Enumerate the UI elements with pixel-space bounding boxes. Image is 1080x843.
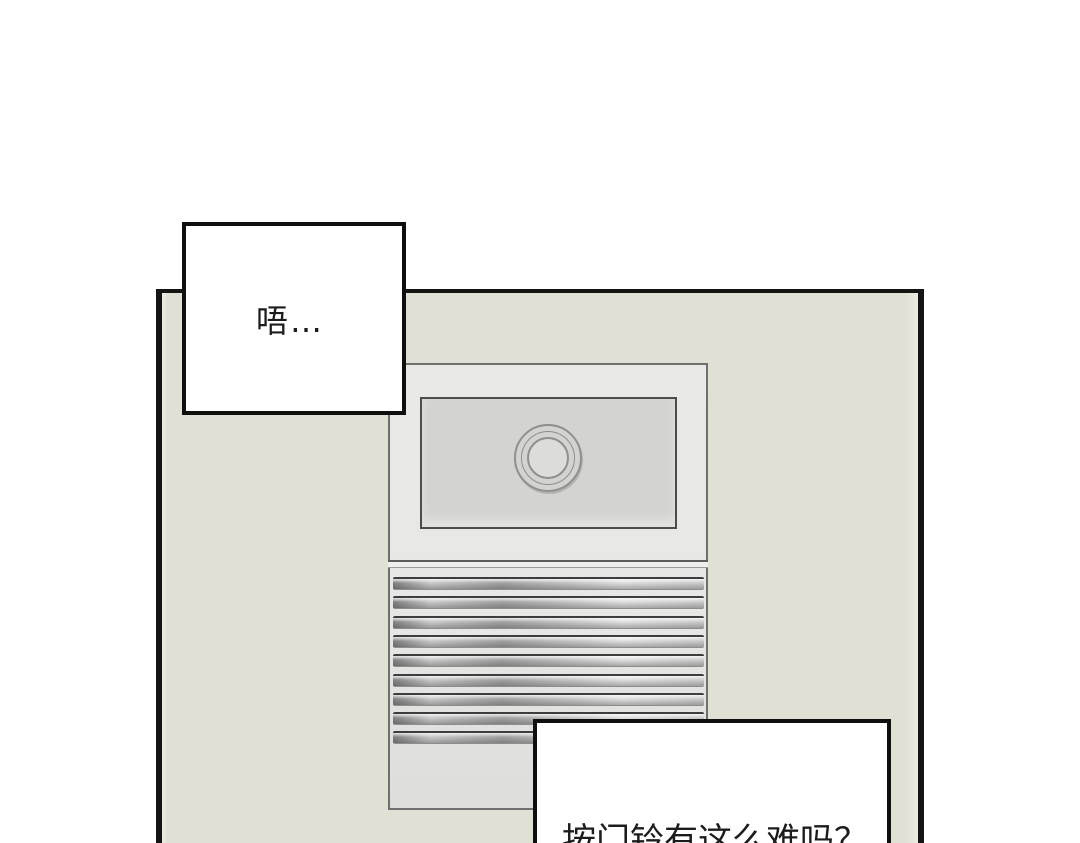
doorbell-screen: [420, 397, 677, 529]
doorbell-seam: [388, 560, 708, 568]
grille-slat: [393, 596, 704, 609]
speech-text-bottom: 按门铃有这么难吗？: [562, 813, 868, 843]
speech-text-top: 唔…: [256, 296, 324, 342]
wall-highlight-left: [162, 293, 166, 843]
camera-lens-center: [527, 437, 569, 479]
camera-lens-icon: [514, 424, 582, 492]
grille-slat: [393, 635, 704, 648]
speech-bubble-bottom: 按门铃有这么难吗？: [533, 719, 891, 843]
grille-slat: [393, 654, 704, 667]
grille-slat: [393, 616, 704, 629]
speech-bubble-top: 唔…: [182, 222, 406, 415]
wall-highlight-right: [905, 293, 918, 843]
comic-page: 唔… 按门铃有这么难吗？: [0, 0, 1080, 843]
grille-slat: [393, 674, 704, 687]
camera-lens-ring: [521, 431, 575, 485]
grille-slat: [393, 693, 704, 706]
grille-slat: [393, 577, 704, 590]
